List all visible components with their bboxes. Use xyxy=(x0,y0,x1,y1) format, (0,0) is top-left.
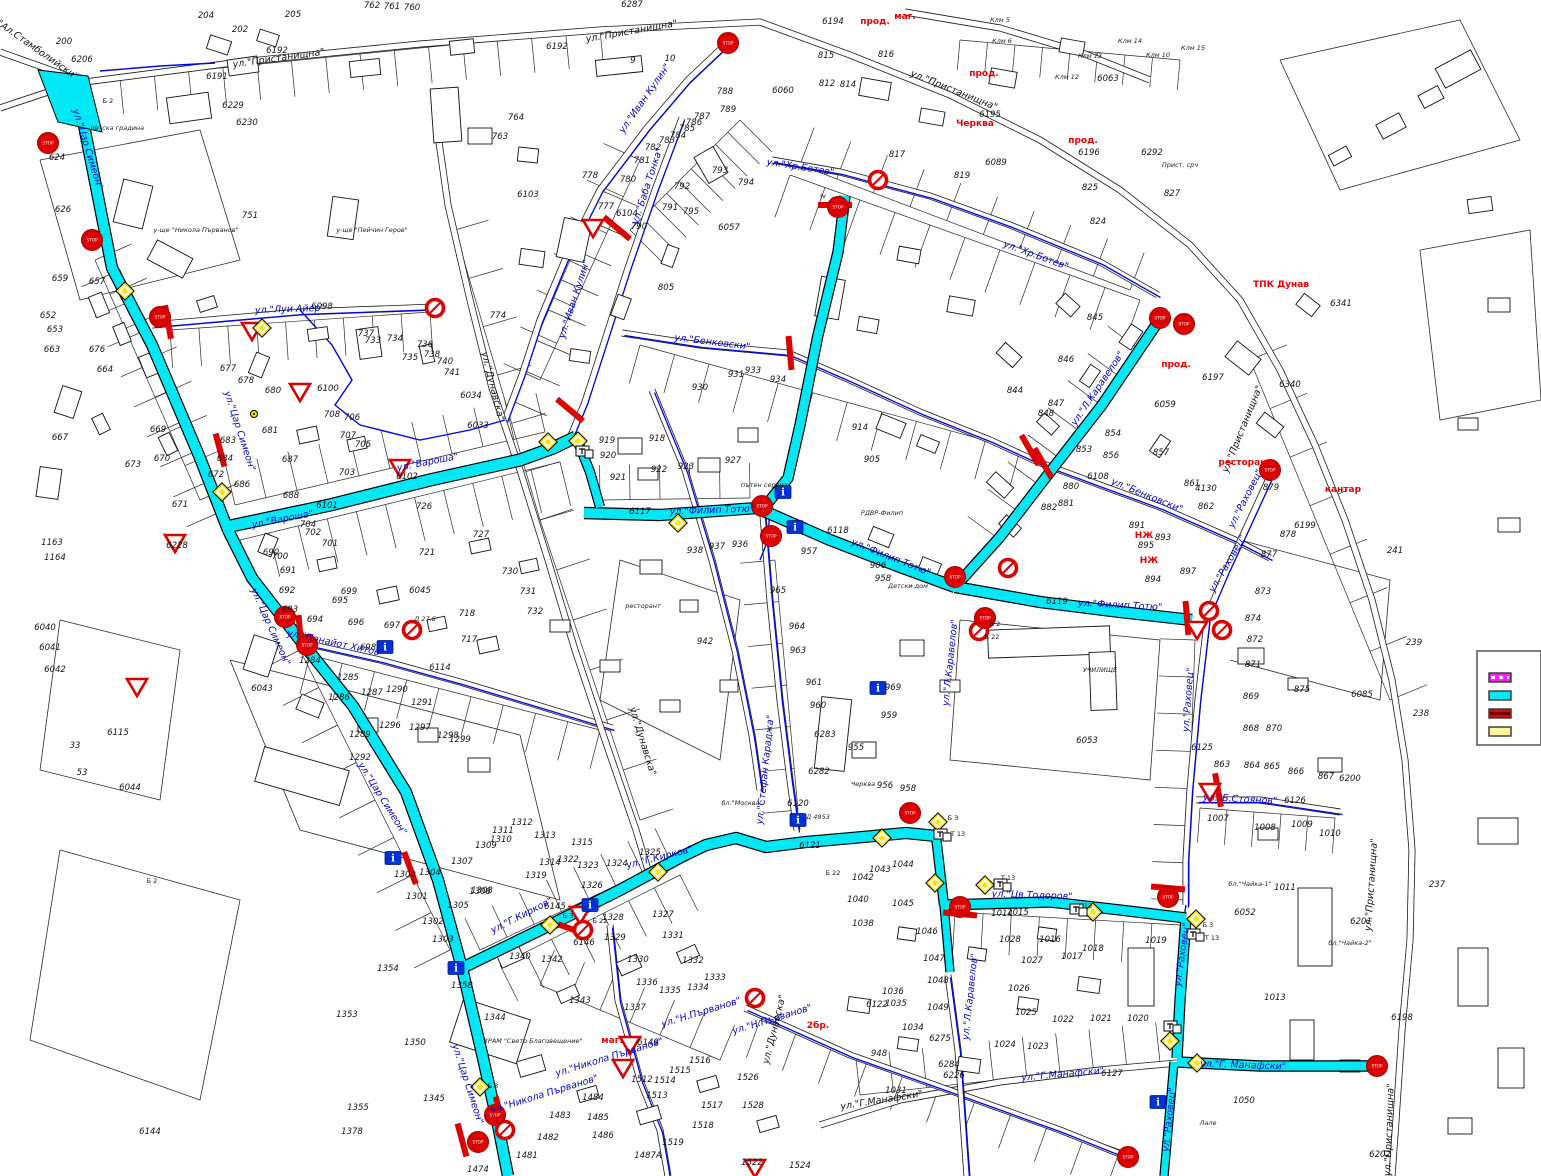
parcel-number: 6045 xyxy=(409,586,431,596)
parcel-number: 812 xyxy=(819,79,835,89)
red-poi-label: кантар xyxy=(1325,485,1362,495)
parcel-number: 863 xyxy=(1214,760,1230,770)
parcel-number: 6101 xyxy=(316,501,338,511)
parcel-number: 6117 xyxy=(629,507,651,517)
parcel-number: 6229 xyxy=(222,101,244,111)
parcel-number: 1337 xyxy=(624,1003,646,1013)
parcel-number: 1323 xyxy=(577,861,599,871)
parcel-number: 204 xyxy=(198,11,214,21)
parcel-number: 955 xyxy=(848,743,864,753)
parcel-number: 6042 xyxy=(44,665,66,675)
parcel-number: 734 xyxy=(387,334,403,344)
building xyxy=(1077,977,1101,994)
building xyxy=(618,438,642,454)
parcel-number: 681 xyxy=(262,426,278,436)
parcel-number: 874 xyxy=(1245,614,1261,624)
parcel-number: 1344 xyxy=(484,1013,506,1023)
stop-sign-text: STOP xyxy=(86,238,98,243)
parcel-number: 1007 xyxy=(1207,814,1229,824)
parcel-number: 690 xyxy=(263,548,279,558)
parcel-number: 1036 xyxy=(882,987,904,997)
parcel-number: 960 xyxy=(810,701,826,711)
parcel-number: 1512 xyxy=(631,1075,653,1085)
parcel-number: 853 xyxy=(1076,445,1092,455)
red-poi-label: прод. xyxy=(860,17,890,27)
parcel-number: 1046 xyxy=(916,927,938,937)
building xyxy=(680,600,698,612)
parcel-number: 789 xyxy=(720,105,736,115)
parcel-number: 683 xyxy=(220,436,236,446)
parcel-number: 692 xyxy=(279,586,295,596)
parcel-number: 1018 xyxy=(1082,944,1104,954)
building xyxy=(550,620,570,632)
parcel-number: 1296 xyxy=(379,721,401,731)
parcel-number: 53 xyxy=(77,768,88,778)
parcel-number: 1026 xyxy=(1008,984,1030,994)
poi-label: Черква xyxy=(851,780,875,788)
poi-label: Клм 13 xyxy=(1078,52,1102,60)
parcel-number: 732 xyxy=(527,607,543,617)
parcel-number: 1017 xyxy=(1061,952,1083,962)
parcel-number: 6146 xyxy=(573,938,595,948)
parcel-number: 1336 xyxy=(636,978,658,988)
parcel-number: 958 xyxy=(900,784,917,794)
info-sign-i: i xyxy=(876,683,880,694)
parcel-number: 1035 xyxy=(885,999,907,1009)
parcel-number: 1286 xyxy=(328,693,350,703)
info-sign-i: i xyxy=(796,815,800,826)
sign-code-label: Б 3 xyxy=(948,814,959,822)
parcel-number: 864 xyxy=(1244,761,1260,771)
parcel-number: 872 xyxy=(1247,635,1263,645)
parcel-number: 1024 xyxy=(994,1040,1016,1050)
parcel-number: 6043 xyxy=(251,684,273,694)
parcel-number: 817 xyxy=(889,150,906,160)
parcel-number: 937 xyxy=(709,542,726,552)
parcel-number: 1025 xyxy=(1015,1008,1037,1018)
poi-label: бл."Чайка-2" xyxy=(1328,939,1371,947)
building xyxy=(517,147,538,163)
parcel-number: 1310 xyxy=(490,835,512,845)
parcel-number: 6199 xyxy=(1294,521,1316,531)
parcel-number: 6292 xyxy=(1141,148,1163,158)
parcel-number: 866 xyxy=(1288,767,1305,777)
building xyxy=(660,700,680,712)
parcel-number: 1474 xyxy=(467,1165,489,1175)
parcel-number: 6230 xyxy=(236,118,258,128)
parcel-number: 879 xyxy=(1263,483,1279,493)
parcel-number: 6119 xyxy=(1046,597,1068,607)
sign-code-label: Т 13 xyxy=(1077,902,1092,910)
parcel-number: 873 xyxy=(1255,587,1271,597)
parcel-number: 942 xyxy=(697,637,713,647)
stop-sign-text: STOP xyxy=(42,141,54,146)
parcel-number: 1327 xyxy=(652,910,674,920)
parcel-number: 1313 xyxy=(534,831,556,841)
parcel-number: 6341 xyxy=(1330,299,1352,309)
red-poi-label: прод. xyxy=(969,69,999,79)
parcel-number: 815 xyxy=(818,51,834,61)
parcel-number: 788 xyxy=(717,87,734,97)
parcel-number: 959 xyxy=(881,711,897,721)
parcel-number: 918 xyxy=(649,434,666,444)
info-sign-i: i xyxy=(1156,1097,1160,1108)
parcel-number: 6122 xyxy=(866,1000,888,1010)
parcel-number: 6060 xyxy=(772,86,794,96)
parcel-number: 1291 xyxy=(411,698,433,708)
parcel-number: 697 xyxy=(384,621,401,631)
parcel-number: 678 xyxy=(238,376,255,386)
parcel-number: 6044 xyxy=(119,783,141,793)
parcel-number: 684 xyxy=(217,454,233,464)
parcel-number: 963 xyxy=(790,646,806,656)
parcel-number: 764 xyxy=(508,113,524,123)
parcel-number: 6125 xyxy=(1191,743,1213,753)
poi-label: Клм 12 xyxy=(1055,73,1079,81)
parcel-number: 239 xyxy=(1406,638,1422,648)
red-poi-label: 2бр. xyxy=(807,1020,829,1031)
parcel-number: 1301 xyxy=(406,892,428,902)
parcel-number: 891 xyxy=(1129,521,1145,531)
parcel-number: 721 xyxy=(419,548,435,558)
poi-label: Д 4953 xyxy=(805,813,830,821)
sign-code-label: Т 13 xyxy=(1204,934,1219,942)
building xyxy=(600,660,620,672)
stop-sign-text: STOP xyxy=(279,615,291,620)
parcel-number: 694 xyxy=(307,615,323,625)
parcel-number: 1522 xyxy=(741,1158,763,1168)
parcel-number: 6197 xyxy=(1202,373,1224,383)
parcel-number: 923 xyxy=(678,462,694,472)
parcel-number: 693 xyxy=(282,605,298,615)
parcel-number: 1329 xyxy=(604,933,626,943)
stop-sign-text: STOP xyxy=(722,41,734,46)
poi-label: Клм 10 xyxy=(1146,51,1170,59)
parcel-number: 906 xyxy=(870,561,887,571)
parcel-number: 905 xyxy=(864,455,880,465)
parcel-number: 1326 xyxy=(581,881,603,891)
parcel-number: 1355 xyxy=(347,1103,369,1113)
parcel-number: 948 xyxy=(871,1049,888,1059)
stop-sign-text: STOP xyxy=(154,315,166,320)
parcel-number: 237 xyxy=(1429,880,1446,890)
parcel-number: 1487А xyxy=(634,1151,662,1161)
parcel-number: 1299 xyxy=(449,735,471,745)
parcel-number: 1514 xyxy=(654,1076,676,1086)
parcel-number: 6191 xyxy=(206,72,228,82)
stop-sign-text: STOP xyxy=(1178,322,1190,327)
building xyxy=(738,428,758,442)
parcel-number: 6059 xyxy=(1154,400,1176,410)
parcel-number: 1524 xyxy=(789,1161,811,1171)
parcel-number: 878 xyxy=(1280,530,1297,540)
building xyxy=(897,927,916,941)
poi-label: бл."Чайка-1" xyxy=(1228,880,1271,888)
parcel-number: 1047 xyxy=(923,954,945,964)
building xyxy=(1498,1048,1524,1088)
parcel-number: 927 xyxy=(725,456,742,466)
parcel-number: 795 xyxy=(683,207,699,217)
parcel-number: 931 xyxy=(728,370,744,380)
stop-sign-text: STOP xyxy=(1371,1064,1383,1069)
parcel-number: 875 xyxy=(1294,685,1310,695)
parcel-number: 6120 xyxy=(787,799,809,809)
building xyxy=(640,560,662,574)
parcel-number: 881 xyxy=(1058,499,1074,509)
parcel-number: 1342 xyxy=(541,955,563,965)
building xyxy=(569,349,590,364)
poi-label: Лале xyxy=(1198,1119,1216,1127)
map-viewport: STOPSTOPSTOPSTOPSTOPSTOPSTOPSTOPSTOPSTOP… xyxy=(0,0,1541,1176)
parcel-number: 1322 xyxy=(557,855,579,865)
building xyxy=(1448,1118,1472,1134)
poi-label: ресторант xyxy=(624,602,661,610)
parcel-number: 6115 xyxy=(107,728,129,738)
t-sign-small xyxy=(1196,933,1204,941)
info-sign-i: i xyxy=(454,963,458,974)
stop-sign-text: STOP xyxy=(1264,468,1276,473)
sign-code-label: Т 13 xyxy=(950,830,965,838)
parcel-number: 774 xyxy=(490,311,506,321)
parcel-number: 1307 xyxy=(451,857,473,867)
parcel-number: 787 xyxy=(694,112,711,122)
parcel-number: 680 xyxy=(265,386,281,396)
parcel-number: 6126 xyxy=(1284,796,1306,806)
parcel-number: 6100 xyxy=(317,384,339,394)
parcel-number: 691 xyxy=(280,566,296,576)
parcel-number: 626 xyxy=(55,205,72,215)
legend-swatch-existing-route xyxy=(1489,691,1511,700)
parcel-number: 1043 xyxy=(869,865,891,875)
parcel-number: 919 xyxy=(599,436,615,446)
building xyxy=(698,458,720,472)
parcel-number: 6041 xyxy=(39,643,61,653)
poi-label: РДВР-Филип xyxy=(861,509,903,517)
parcel-number: 696 xyxy=(348,618,365,628)
parcel-number: 793 xyxy=(712,166,728,176)
parcel-number: 1038 xyxy=(852,919,874,929)
parcel-number: 1163 xyxy=(41,538,63,548)
parcel-number: 699 xyxy=(341,587,357,597)
parcel-number: 1300 xyxy=(394,870,416,880)
parcel-number: 845 xyxy=(1087,313,1103,323)
parcel-number: 827 xyxy=(1164,189,1181,199)
parcel-number: 726 xyxy=(416,502,433,512)
poi-label: Клм 5 xyxy=(990,16,1010,24)
parcel-number: 1034 xyxy=(902,1023,924,1033)
parcel-number: 6063 xyxy=(1097,74,1119,84)
parcel-number: 6283 xyxy=(814,730,836,740)
parcel-number: 1015 xyxy=(1007,908,1029,918)
sign-code-label: Б 2 xyxy=(147,877,158,885)
parcel-number: 761 xyxy=(384,2,400,12)
parcel-number: 6103 xyxy=(517,190,539,200)
parcel-number: 957 xyxy=(801,547,818,557)
yellow-dot-center xyxy=(253,413,255,415)
building xyxy=(519,248,545,267)
parcel-number: 825 xyxy=(1082,183,1098,193)
parcel-number: 1345 xyxy=(423,1094,445,1104)
parcel-number: 762 xyxy=(364,1,380,11)
parcel-number: 6226 xyxy=(943,1071,965,1081)
legend-swatch-other-route xyxy=(1489,727,1511,736)
poi-label: Клм 15 xyxy=(1181,44,1205,52)
stop-sign-text: STOP xyxy=(949,575,961,580)
parcel-number: 791 xyxy=(662,203,678,213)
parcel-number: 1011 xyxy=(1274,883,1296,893)
parcel-number: 1023 xyxy=(1027,1042,1049,1052)
parcel-number: 877 xyxy=(1261,550,1278,560)
building xyxy=(349,58,381,77)
parcel-number: 871 xyxy=(1245,660,1261,670)
poi-label: ХРАМ "Свето Благовещение" xyxy=(482,1037,582,1045)
parcel-number: 6198 xyxy=(1391,1013,1413,1023)
sign-code-label: Б 3 xyxy=(563,912,574,920)
building xyxy=(1089,652,1117,711)
poi-label: Д 27.6 xyxy=(413,615,436,623)
parcel-number: 6194 xyxy=(822,17,844,27)
parcel-number: 6121 xyxy=(799,841,821,851)
parcel-number: 727 xyxy=(473,530,490,540)
building xyxy=(1458,948,1488,1006)
parcel-number: 6127 xyxy=(1101,1069,1123,1079)
parcel-number: 763 xyxy=(492,132,508,142)
parcel-number: 1287 xyxy=(361,688,383,698)
parcel-number: 671 xyxy=(172,500,188,510)
parcel-number: 6206 xyxy=(71,55,93,65)
parcel-number: 956 xyxy=(877,781,894,791)
parcel-number: 895 xyxy=(1138,541,1154,551)
parcel-number: 934 xyxy=(770,375,786,385)
parcel-number: 1028 xyxy=(999,935,1021,945)
parcel-number: 6108 xyxy=(1087,472,1109,482)
parcel-number: 1378 xyxy=(341,1127,363,1137)
parcel-number: 1315 xyxy=(571,838,593,848)
sign-code-label: Т 13 xyxy=(1000,874,1015,882)
parcel-number: 964 xyxy=(789,622,805,632)
parcel-number: 1332 xyxy=(682,956,704,966)
parcel-number: 921 xyxy=(610,473,626,483)
parcel-number: 6196 xyxy=(1078,148,1100,158)
parcel-number: 1016 xyxy=(1039,935,1061,945)
parcel-number: 1519 xyxy=(662,1138,684,1148)
building xyxy=(1318,758,1342,772)
parcel-number: 6033 xyxy=(467,421,489,431)
poi-label: УЧИЛИЩЕ xyxy=(1083,666,1118,674)
parcel-number: 1021 xyxy=(1090,1014,1112,1024)
cadastral-map[interactable]: STOPSTOPSTOPSTOPSTOPSTOPSTOPSTOPSTOPSTOP… xyxy=(0,0,1541,1176)
poi-label: у-ще "Пейчин Геров" xyxy=(335,226,407,234)
parcel-number: 695 xyxy=(332,596,348,606)
parcel-number: 893 xyxy=(1155,533,1171,543)
parcel-number: 1484 xyxy=(582,1093,604,1103)
parcel-number: 1515 xyxy=(669,1066,691,1076)
parcel-number: 844 xyxy=(1007,386,1023,396)
parcel-number: 848 xyxy=(1038,409,1055,419)
parcel-number: 687 xyxy=(282,455,299,465)
stop-sign-text: STOP xyxy=(1154,316,1166,321)
parcel-number: 1518 xyxy=(692,1121,714,1131)
parcel-number: 777 xyxy=(598,202,615,212)
parcel-number: 920 xyxy=(600,451,616,461)
sign-code-label: В 2 xyxy=(990,620,1001,628)
red-poi-label: прод. xyxy=(1068,136,1098,146)
building xyxy=(1458,418,1478,430)
parcel-number: 805 xyxy=(658,283,674,293)
parcel-number: 708 xyxy=(324,410,341,420)
parcel-number: 1358 xyxy=(451,981,473,991)
building xyxy=(1298,888,1332,966)
parcel-number: 1303 xyxy=(432,935,454,945)
parcel-number: 1045 xyxy=(892,899,914,909)
parcel-number: 1526 xyxy=(737,1073,759,1083)
parcel-number: 6275 xyxy=(929,1034,951,1044)
parcel-number: 781 xyxy=(634,156,650,166)
parcel-number: 730 xyxy=(502,567,518,577)
poi-label: у-ще "Никола Първанов" xyxy=(152,226,238,234)
building xyxy=(720,680,738,692)
building xyxy=(166,92,211,124)
parcel-number: 1343 xyxy=(569,996,591,1006)
parcel-number: 816 xyxy=(878,50,895,60)
parcel-number: 202 xyxy=(232,25,248,35)
parcel-number: 760 xyxy=(404,3,420,13)
parcel-number: 870 xyxy=(1266,724,1282,734)
parcel-number: 792 xyxy=(674,182,690,192)
parcel-number: 846 xyxy=(1058,355,1075,365)
t-sign-small xyxy=(1173,1025,1181,1033)
parcel-number: 731 xyxy=(520,587,536,597)
parcel-number: 868 xyxy=(1243,724,1260,734)
stop-sign-text: STOP xyxy=(1122,1155,1134,1160)
parcel-number: 1044 xyxy=(892,860,914,870)
parcel-number: 856 xyxy=(1103,451,1120,461)
parcel-number: 1022 xyxy=(1052,1015,1074,1025)
parcel-number: 737 xyxy=(358,329,375,339)
info-sign-i: i xyxy=(793,522,797,533)
parcel-number: 965 xyxy=(770,586,786,596)
parcel-number: 667 xyxy=(52,433,69,443)
sign-code-label: Б 22 xyxy=(985,633,1000,641)
parcel-number: 933 xyxy=(745,366,761,376)
parcel-number: 6057 xyxy=(718,223,740,233)
parcel-number: 741 xyxy=(444,368,460,378)
parcel-number: 854 xyxy=(1105,429,1121,439)
parcel-number: 659 xyxy=(52,274,68,284)
parcel-number: 238 xyxy=(1413,709,1430,719)
parcel-number: 938 xyxy=(687,546,704,556)
parcel-number: 1010 xyxy=(1319,829,1341,839)
red-poi-label: НЖ xyxy=(1135,531,1154,541)
building xyxy=(1498,518,1520,532)
stop-sign-text: STOP xyxy=(1162,895,1174,900)
parcel-number: 819 xyxy=(954,171,970,181)
parcel-number: 672 xyxy=(208,470,224,480)
stop-sign-text: STOP xyxy=(472,1140,484,1145)
parcel-number: 624 xyxy=(49,153,65,163)
parcel-number: 673 xyxy=(125,460,141,470)
building xyxy=(468,128,492,144)
parcel-number: 847 xyxy=(1048,399,1065,409)
parcel-number: 1513 xyxy=(646,1091,668,1101)
stop-sign-text: STOP xyxy=(954,905,966,910)
parcel-number: 867 xyxy=(1318,772,1335,782)
building xyxy=(1467,196,1493,213)
building xyxy=(449,39,474,55)
info-sign-i: i xyxy=(781,487,785,498)
parcel-number: 1308 xyxy=(471,886,493,896)
info-sign-i: i xyxy=(588,900,592,911)
